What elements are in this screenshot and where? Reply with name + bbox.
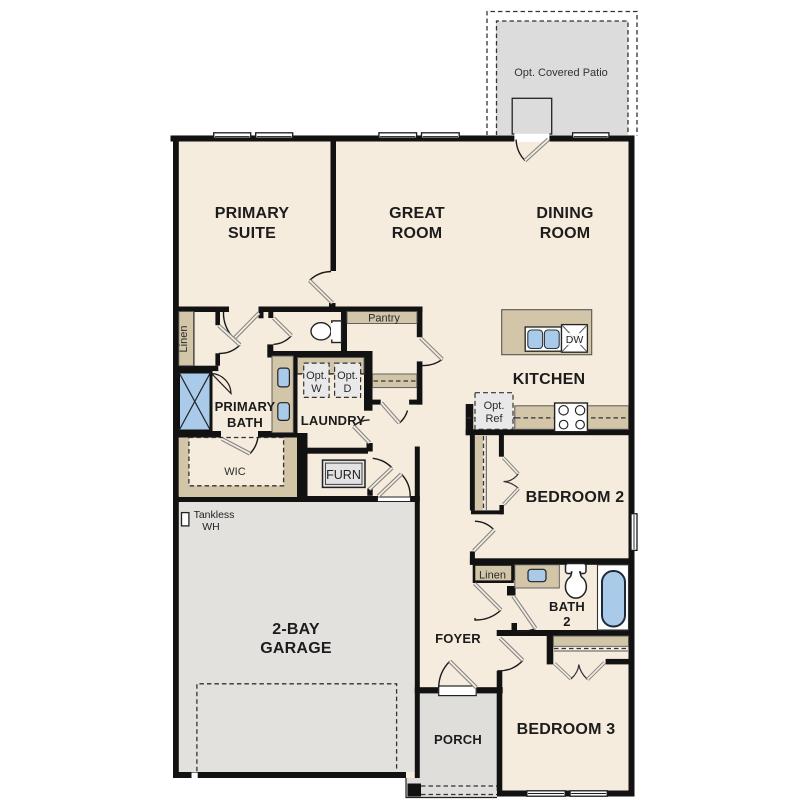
svg-text:FOYER: FOYER xyxy=(435,631,481,646)
svg-text:Opt. Covered Patio: Opt. Covered Patio xyxy=(514,67,608,79)
svg-text:ROOM: ROOM xyxy=(540,225,591,242)
svg-text:FURN: FURN xyxy=(326,468,361,482)
svg-text:LAUNDRY: LAUNDRY xyxy=(301,413,366,428)
svg-text:Linen: Linen xyxy=(178,326,190,353)
svg-text:SUITE: SUITE xyxy=(228,225,276,242)
svg-text:DW: DW xyxy=(566,334,584,346)
svg-text:Tankless: Tankless xyxy=(194,509,235,521)
svg-text:W: W xyxy=(311,383,322,395)
svg-text:Opt.: Opt. xyxy=(484,400,505,412)
svg-text:PRIMARY: PRIMARY xyxy=(215,205,290,222)
svg-text:Linen: Linen xyxy=(479,570,506,582)
svg-text:BEDROOM 3: BEDROOM 3 xyxy=(517,721,616,738)
svg-text:BATH: BATH xyxy=(227,415,263,430)
svg-text:PRIMARY: PRIMARY xyxy=(215,399,276,414)
svg-text:GREAT: GREAT xyxy=(389,205,445,222)
svg-text:WIC: WIC xyxy=(224,466,245,478)
svg-text:GARAGE: GARAGE xyxy=(260,640,332,657)
svg-text:PORCH: PORCH xyxy=(434,732,482,747)
svg-text:Pantry: Pantry xyxy=(368,313,400,325)
svg-text:Opt.: Opt. xyxy=(306,370,327,382)
svg-text:WH: WH xyxy=(202,521,220,533)
svg-text:DINING: DINING xyxy=(536,205,593,222)
svg-text:BEDROOM 2: BEDROOM 2 xyxy=(526,489,625,506)
svg-text:KITCHEN: KITCHEN xyxy=(513,371,586,388)
svg-text:Ref: Ref xyxy=(485,413,503,425)
svg-text:2-BAY: 2-BAY xyxy=(272,621,320,638)
svg-text:D: D xyxy=(344,383,352,395)
svg-text:Opt.: Opt. xyxy=(337,370,358,382)
svg-text:BATH: BATH xyxy=(549,599,585,614)
svg-text:ROOM: ROOM xyxy=(392,225,443,242)
svg-text:2: 2 xyxy=(563,614,570,629)
